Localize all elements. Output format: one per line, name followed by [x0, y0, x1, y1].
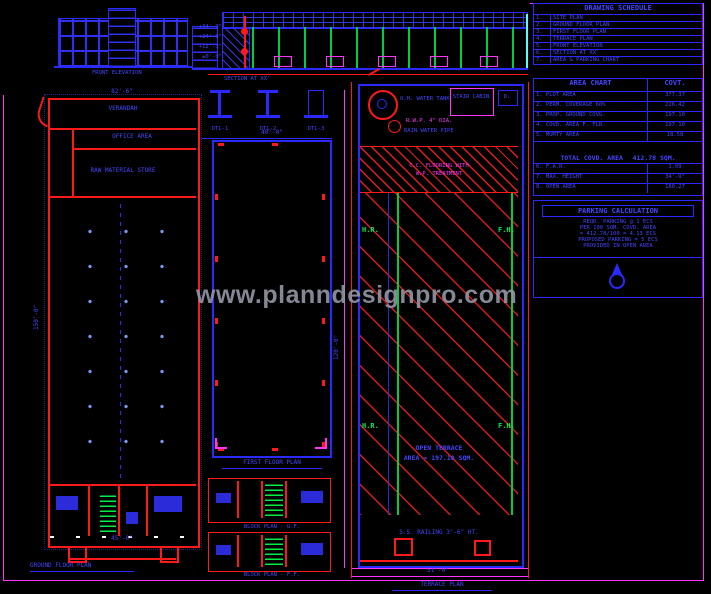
schedule-row: 2. GROUND FLOOR PLAN [534, 22, 702, 29]
north-arrow-icon [604, 261, 630, 297]
detail-figure: DTL-1 [202, 88, 238, 136]
rwp-note-magenta: R.W.P. 4" DIA. [406, 118, 452, 124]
schedule-row: 1. SITE PLAN [534, 15, 702, 22]
watermark: www.planndesignpro.com [196, 281, 526, 310]
schedule-label: FIRST FLOOR PLAN [551, 29, 702, 35]
terrace-wp-band: C.C. FLOORING WITH W.P. TREATMENT [360, 146, 518, 193]
area-row: 4. COVD. AREA F. FLR. 197.10 [534, 122, 702, 132]
left-plan-staircase [100, 492, 116, 532]
strip1-fixture [301, 491, 323, 503]
schedule-label: TERRACE PLAN [551, 36, 702, 42]
area-value: 34'-9" [648, 174, 702, 183]
area-value: 180.27 [648, 184, 702, 193]
left-plan-fixture [126, 512, 138, 524]
section-riser-line [244, 16, 246, 70]
area-label: 3. PROP. GROUND COVG. [534, 112, 648, 121]
section-opening [378, 56, 396, 67]
left-plan-center-line [120, 202, 121, 478]
schedule-no: 7. [534, 57, 551, 63]
section-ground-line [208, 68, 528, 70]
strip-plan-2 [208, 532, 331, 572]
strip1-partition [237, 481, 239, 518]
area-label: 6. F.A.R. [534, 164, 648, 173]
riser-pipe [397, 193, 399, 515]
area-chart-table: AREA CHART COVT. 1. PLOT AREA 377.37 2. … [533, 78, 703, 196]
strip2-fixture [216, 545, 231, 555]
parking-title: PARKING CALCULATION [542, 205, 694, 217]
section-title: SECTION AT XX' [224, 76, 270, 82]
left-plan-wall-line [50, 484, 196, 486]
detail-figure: DTL-3 [298, 88, 334, 136]
schedule-label: AREA & PARKING CHART [551, 57, 702, 63]
section-right-wall [526, 14, 528, 68]
area-header-row: AREA CHART COVT. [534, 79, 702, 92]
left-plan-fixture [56, 496, 78, 510]
area-label: 5. MUMTY AREA [534, 132, 648, 141]
riser-pipe [511, 193, 513, 515]
area-total-label: TOTAL COVD. AREA [560, 154, 623, 162]
area-row: 8. OPEN AREA 180.27 [534, 184, 702, 193]
area-header-right: COVT. [648, 79, 702, 91]
schedule-title-row: DRAWING SCHEDULE [534, 4, 702, 15]
water-tank-label: O.H. WATER TANK [400, 96, 452, 102]
schedule-no: 3. [534, 29, 551, 35]
drawing-schedule-table: DRAWING SCHEDULE 1. SITE PLAN 2. GROUND … [533, 3, 703, 65]
section-riser-dot [241, 48, 248, 55]
area-value: 226.42 [648, 102, 702, 111]
section-level-label: +34'-9" [196, 24, 222, 30]
middle-plan-corner-mark [315, 438, 327, 449]
terrace-inner-wall [388, 193, 389, 515]
hose-reel-label: H.R. [362, 422, 379, 430]
strip2-partition [285, 535, 287, 567]
band-note-2: W.P. TREATMENT [390, 171, 488, 177]
left-plan-dim-bottom: 45'-0" [82, 536, 162, 543]
area-row: 5. MUMTY AREA 18.58 [534, 132, 702, 142]
area-row: 2. PERM. COVERAGE 60% 226.42 [534, 102, 702, 112]
section-level-label: ±0'-0" [196, 54, 222, 60]
strip1-fixture [216, 493, 231, 503]
schedule-no: 1. [534, 15, 551, 21]
area-value: 197.10 [648, 122, 702, 131]
schedule-label: FRONT ELEVATION [551, 43, 702, 49]
strip1-staircase [265, 484, 283, 516]
area-row: 6. F.A.R. 1.09 [534, 164, 702, 174]
sheet-border-left [3, 95, 4, 581]
rwp-circle [388, 120, 401, 133]
right-plan-ext-line-right [528, 82, 529, 578]
parking-divider [534, 257, 702, 258]
fire-hydrant-label: F.H. [498, 226, 515, 234]
detail-base [208, 115, 232, 118]
terrace-hatch-area: OPEN TERRACE AREA = 197.10 SQM. [360, 192, 518, 515]
rwp-note-blue: RAIN WATER PIPE [404, 128, 454, 134]
left-plan-dim-left: 150'-0" [34, 270, 41, 330]
building-section: SECTION AT XX' [222, 10, 530, 82]
left-plan-wall-line [72, 130, 74, 196]
hose-reel-label: H.R. [362, 226, 379, 234]
right-plan-bottom-wall [360, 560, 518, 562]
middle-plan-title: FIRST FLOOR PLAN [222, 460, 322, 469]
left-plan-porch-column [160, 546, 179, 563]
strip1-partition [285, 481, 287, 518]
left-plan-wall-line [50, 196, 196, 198]
schedule-row: 3. FIRST FLOOR PLAN [534, 29, 702, 36]
detail-base [256, 115, 280, 118]
section-opening [480, 56, 498, 67]
sheet-border-right [703, 3, 704, 581]
band-note-1: C.C. FLOORING WITH [380, 163, 498, 169]
strip-plan-1-title: BLOCK PLAN - G.F. [232, 524, 312, 530]
schedule-row: 7. AREA & PARKING CHART [534, 57, 702, 63]
schedule-title: DRAWING SCHEDULE [534, 4, 702, 14]
schedule-no: 5. [534, 43, 551, 49]
right-plan-column [474, 540, 491, 556]
strip2-staircase [265, 537, 283, 565]
area-label: 8. OPEN AREA [534, 184, 648, 193]
elevation-title: FRONT ELEVATION [92, 70, 142, 76]
stair-cabin-label: STAIR CABIN [452, 94, 490, 100]
strip2-fixture [301, 543, 323, 555]
middle-plan-corner-mark [215, 438, 227, 449]
middle-plan-dim-top: 40'-0" [212, 130, 332, 137]
left-plan-partition [146, 486, 148, 536]
schedule-no: 2. [534, 22, 551, 28]
schedule-no: 6. [534, 50, 551, 56]
section-opening [430, 56, 448, 67]
strip2-partition [261, 535, 263, 567]
left-plan-wall-line [72, 148, 196, 150]
left-plan-dim-top: 82'-6" [72, 89, 172, 96]
front-elevation: FRONT ELEVATION [58, 8, 190, 74]
schedule-label: SECTION AT XX' [551, 50, 702, 56]
section-level-label: +12'-3" [196, 44, 222, 50]
parking-line: PROVIDED IN OPEN AREA [534, 243, 702, 249]
left-plan-porch-line [70, 558, 176, 560]
schedule-label: GROUND FLOOR PLAN [551, 22, 702, 28]
cad-sheet: DRAWING SCHEDULE 1. SITE PLAN 2. GROUND … [0, 0, 711, 594]
right-plan-dim-bottom: 51'-0" [408, 568, 468, 575]
area-row: 3. PROP. GROUND COVG. 197.10 [534, 112, 702, 122]
strip-plan-2-title: BLOCK PLAN - F.F. [232, 572, 312, 578]
section-opening [326, 56, 344, 67]
left-plan-room1-label: VERANDAH [56, 106, 190, 113]
elevation-ground-line [54, 66, 192, 68]
schedule-row: 6. SECTION AT XX' [534, 50, 702, 57]
area-value: 18.58 [648, 132, 702, 141]
left-plan-room2-label: OFFICE AREA [76, 134, 188, 141]
schedule-row: 5. FRONT ELEVATION [534, 43, 702, 50]
detail-underline [202, 138, 332, 139]
section-level-label: +24'-6" [196, 34, 222, 40]
detail-base [304, 115, 328, 118]
area-value: 197.10 [648, 112, 702, 121]
area-header-left: AREA CHART [534, 79, 648, 91]
section-opening [274, 56, 292, 67]
duct-label: D. [499, 94, 515, 100]
fire-hydrant-label: F.H. [498, 422, 515, 430]
left-plan-partition [88, 486, 90, 536]
area-row: 7. MAX. HEIGHT 34'-9" [534, 174, 702, 184]
left-plan: 82'-6" VERANDAH OFFICE AREA RAW MATERIAL… [44, 92, 204, 574]
right-plan-ext-line-left [351, 82, 352, 578]
detail-stem [218, 93, 221, 115]
area-value: 1.09 [648, 164, 702, 173]
area-label: 4. COVD. AREA F. FLR. [534, 122, 648, 131]
terrace-label-1: OPEN TERRACE [390, 445, 488, 452]
parking-calculation-box: PARKING CALCULATION REQD. PARKING @ 1 EC… [533, 200, 703, 298]
area-value: 377.37 [648, 92, 702, 101]
left-plan-porch-column [68, 546, 87, 563]
schedule-label: SITE PLAN [551, 15, 702, 21]
detail-stem [266, 93, 269, 115]
left-plan-column-grid [60, 204, 186, 474]
left-plan-room3-label: RAW MATERIAL STORE [56, 168, 190, 175]
middle-plan-ticks-bottom [218, 448, 322, 451]
area-total-row: TOTAL COVD. AREA 412.78 SQM. [534, 142, 702, 164]
left-plan-partition [118, 486, 120, 536]
water-tank-inner [377, 99, 387, 109]
area-label: 1. PLOT AREA [534, 92, 648, 101]
railing-note: S.S. RAILING 3'-6" HT. [380, 530, 498, 537]
left-plan-title: GROUND FLOOR PLAN [30, 563, 134, 572]
area-total-value: 412.78 SQM. [633, 154, 676, 162]
area-label: 2. PERM. COVERAGE 60% [534, 102, 648, 111]
strip1-partition [261, 481, 263, 518]
right-plan-title: TERRACE PLAN [392, 582, 492, 591]
schedule-row: 4. TERRACE PLAN [534, 36, 702, 43]
area-label: 7. MAX. HEIGHT [534, 174, 648, 183]
elevation-tower [108, 8, 136, 68]
area-row: 1. PLOT AREA 377.37 [534, 92, 702, 102]
right-plan-dim-left-line [344, 90, 345, 568]
left-plan-fixture [154, 496, 182, 512]
terrace-label-2: AREA = 197.10 SQM. [384, 455, 494, 462]
middle-plan-ticks-top [218, 143, 322, 146]
duct-box: D. [498, 90, 518, 106]
detail-box [308, 90, 324, 117]
right-plan-column [394, 538, 413, 556]
section-riser-dot [241, 28, 248, 35]
stair-cabin-box: STAIR CABIN [450, 88, 494, 116]
strip2-partition [237, 535, 239, 567]
schedule-no: 4. [534, 36, 551, 42]
right-plan: O.H. WATER TANK STAIR CABIN D. R.W.P. 4"… [350, 78, 530, 592]
right-plan-dim-line [352, 576, 528, 577]
strip-plan-1 [208, 478, 331, 523]
